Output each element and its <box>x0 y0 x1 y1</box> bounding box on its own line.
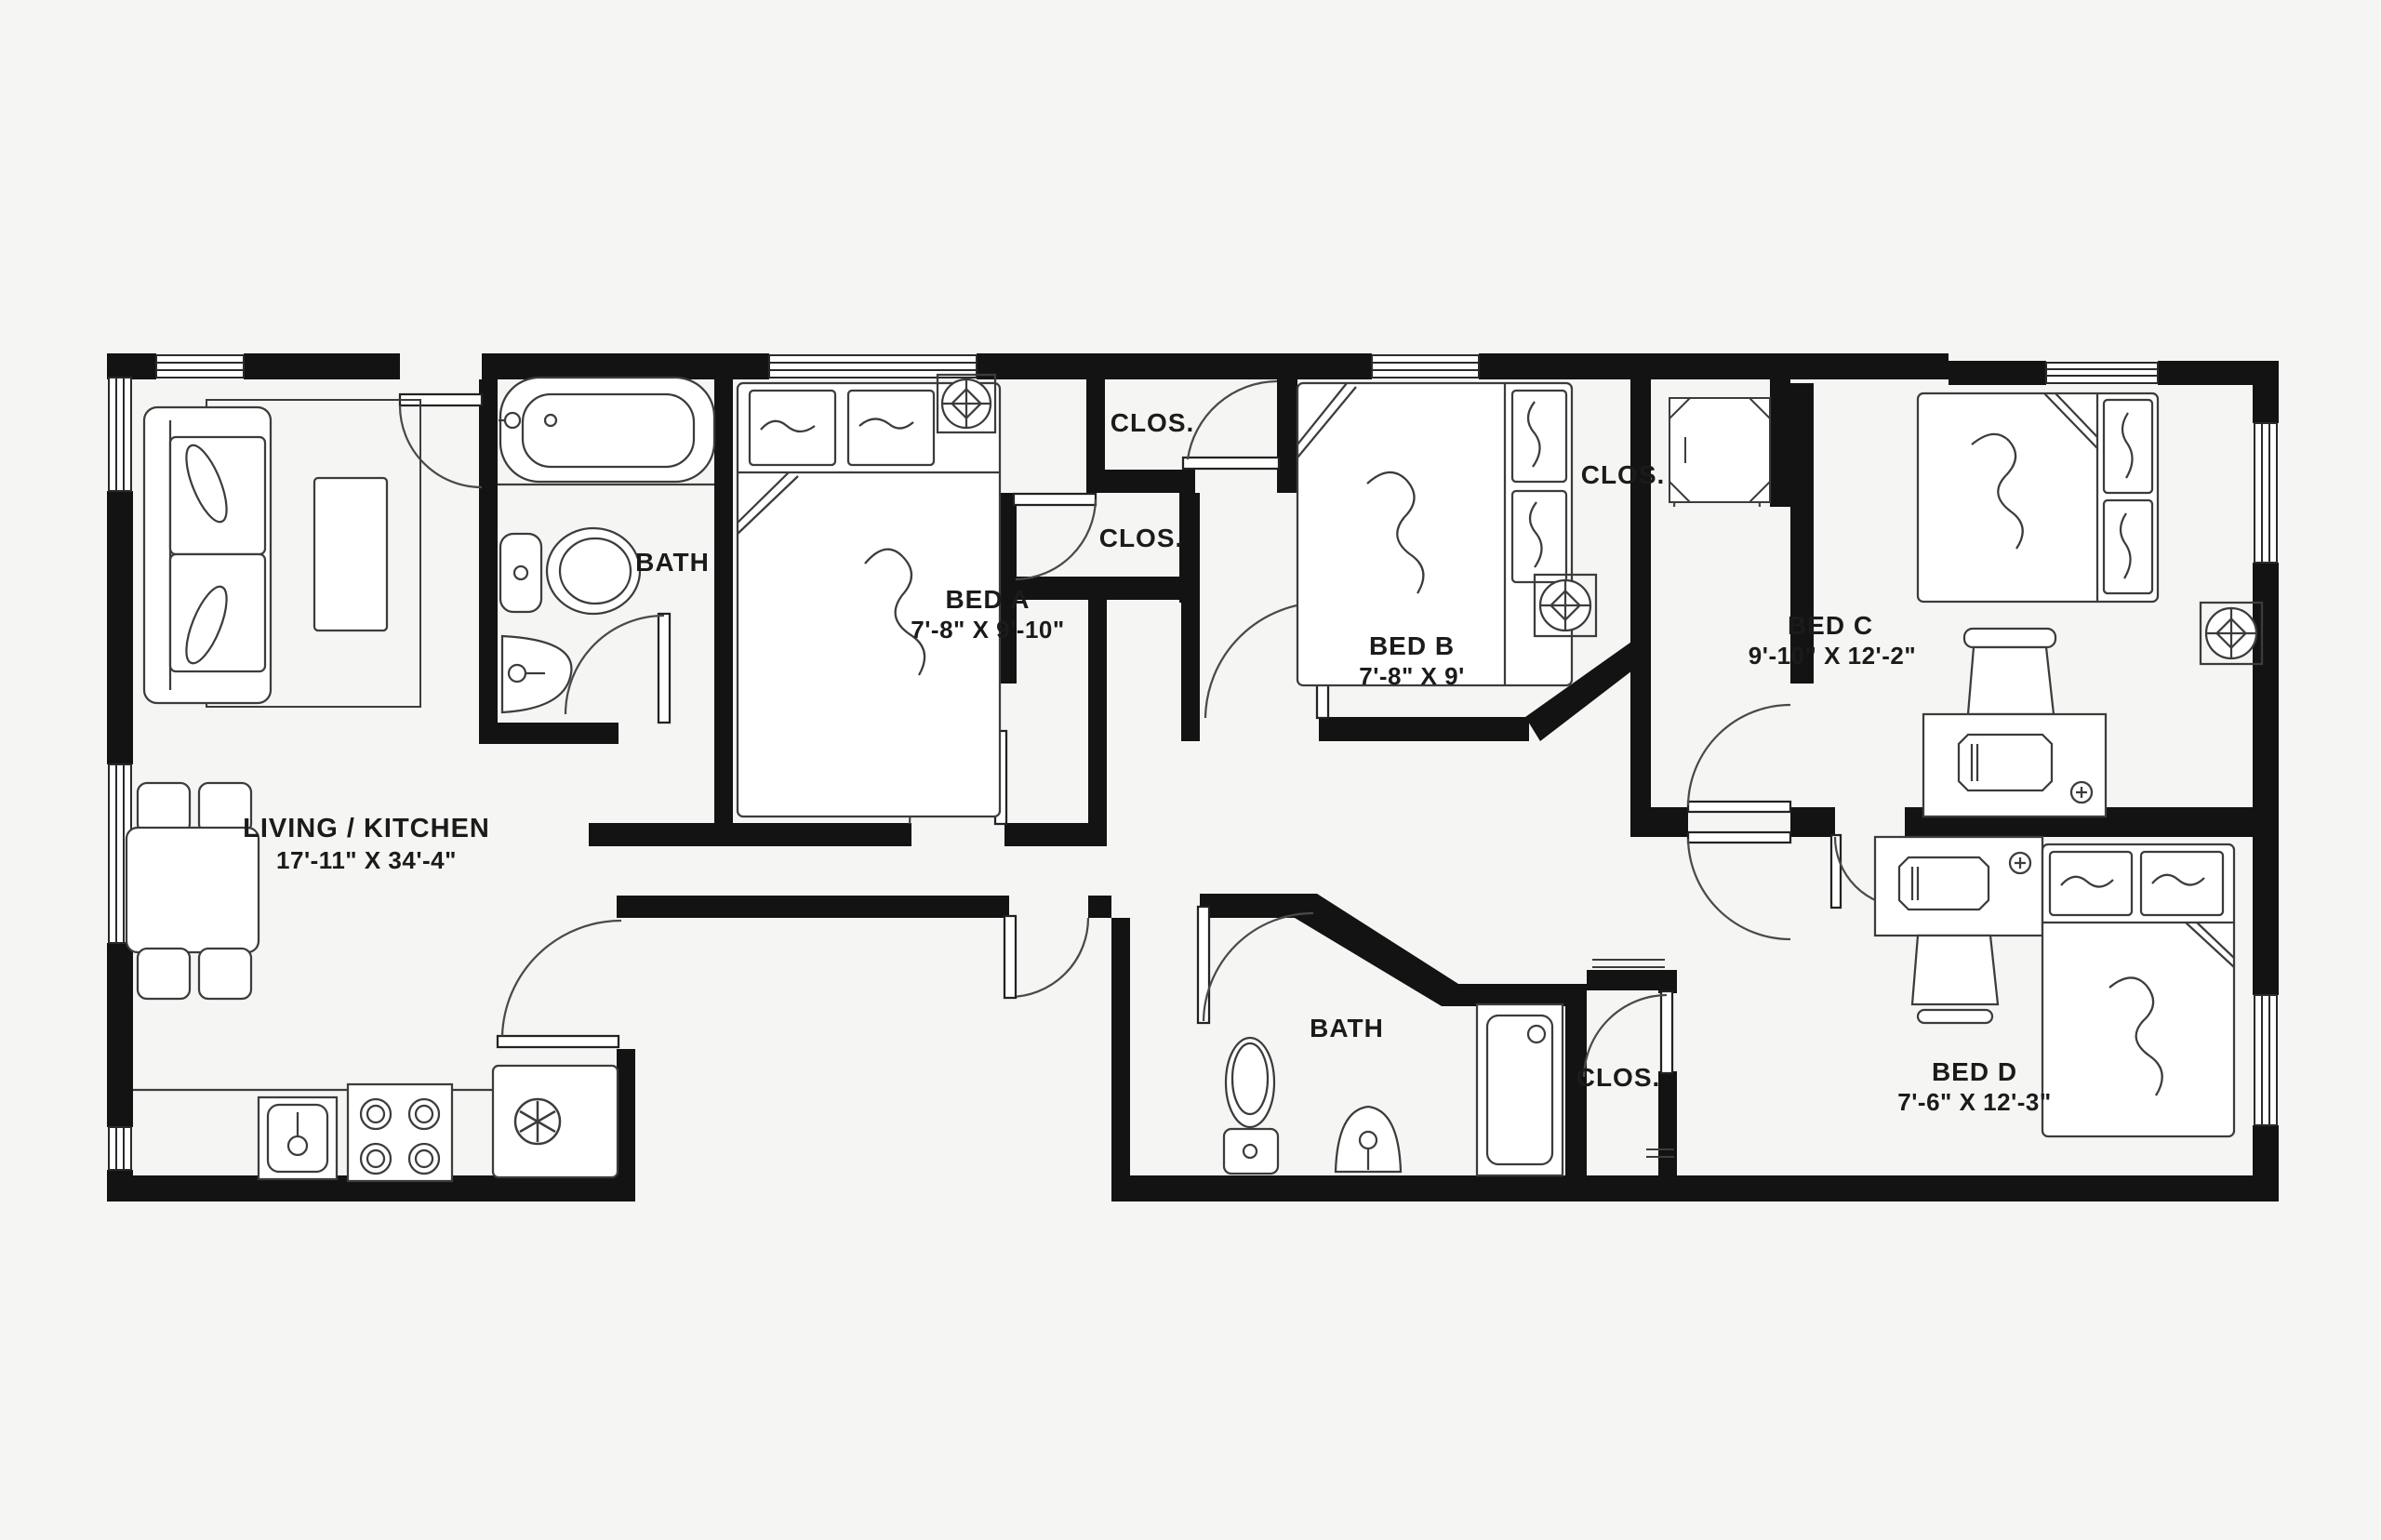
label-bed-b: BED B <box>1369 631 1455 660</box>
label-bed-d: BED D <box>1932 1057 2017 1086</box>
sofa <box>144 407 271 703</box>
floor-plan-drawing: LIVING / KITCHEN 17'-11" X 34'-4" BATH B… <box>0 0 2381 1540</box>
alcove-entry-door <box>1004 916 1088 998</box>
toilet-2 <box>1224 1038 1278 1174</box>
label-living-kitchen: LIVING / KITCHEN <box>243 814 490 843</box>
bathtub <box>499 378 714 482</box>
bedC-desk <box>1923 714 2106 816</box>
bedC-bed <box>1918 393 2158 602</box>
label-clos-2: CLOS. <box>1099 524 1184 552</box>
refrigerator <box>493 1066 618 1177</box>
dining-table-set <box>126 783 259 999</box>
coffee-table <box>314 478 387 631</box>
bath1-door <box>565 614 670 723</box>
bedD-desk <box>1875 837 2042 936</box>
closet1-door <box>1183 381 1279 469</box>
entry-door-top <box>400 394 482 487</box>
bedC-furniture <box>1918 393 2262 816</box>
shower <box>1477 1004 1563 1175</box>
label-bed-c-dims: 9'-10" X 12'-2" <box>1749 642 1916 670</box>
bedD-bed <box>2042 844 2234 1136</box>
stove <box>348 1084 452 1181</box>
closet-mid-dresser <box>1669 398 1770 502</box>
label-living-kitchen-dims: 17'-11" X 34'-4" <box>276 846 457 874</box>
label-clos-mid: CLOS. <box>1581 460 1666 489</box>
label-bath-1: BATH <box>635 548 710 577</box>
kitchen-sink <box>259 1097 337 1179</box>
kitchen-counter <box>133 1066 618 1181</box>
window-top-1 <box>156 355 244 378</box>
hall-door-south <box>1688 832 1790 939</box>
window-right-1 <box>2255 423 2277 563</box>
closet2-door <box>1014 494 1096 579</box>
bath2-fixtures <box>1224 1004 1563 1175</box>
window-right-2 <box>2255 995 2277 1125</box>
bath2-door <box>1198 907 1313 1023</box>
label-bed-d-dims: 7'-6" X 12'-3" <box>1897 1088 2051 1116</box>
pedestal-sink-1 <box>502 636 571 712</box>
label-bed-a: BED A <box>945 585 1030 614</box>
room-labels: LIVING / KITCHEN 17'-11" X 34'-4" BATH B… <box>243 408 2052 1116</box>
label-clos-3: CLOS. <box>1576 1063 1661 1092</box>
label-bed-a-dims: 7'-8" X 9'-10" <box>911 616 1064 644</box>
label-clos-1: CLOS. <box>1111 408 1195 437</box>
window-top-4 <box>2046 363 2158 383</box>
label-bed-b-dims: 7'-8" X 9' <box>1359 662 1465 690</box>
toilet-1 <box>500 528 640 614</box>
bath1-fixtures <box>498 378 714 712</box>
label-bath-2: BATH <box>1310 1014 1384 1042</box>
pedestal-sink-2 <box>1336 1107 1401 1172</box>
window-left-1 <box>109 378 131 491</box>
label-bed-c: BED C <box>1788 611 1873 640</box>
bedC-desk-chair <box>1964 629 2055 714</box>
window-left-3 <box>109 1127 131 1170</box>
bedD-desk-chair <box>1912 936 1998 1023</box>
bedC-door <box>1688 705 1790 812</box>
kitchen-door <box>498 921 621 1047</box>
window-top-3 <box>1372 355 1479 378</box>
living-room-furniture <box>126 400 618 1181</box>
floor-plan-page: LIVING / KITCHEN 17'-11" X 34'-4" BATH B… <box>0 0 2381 1540</box>
